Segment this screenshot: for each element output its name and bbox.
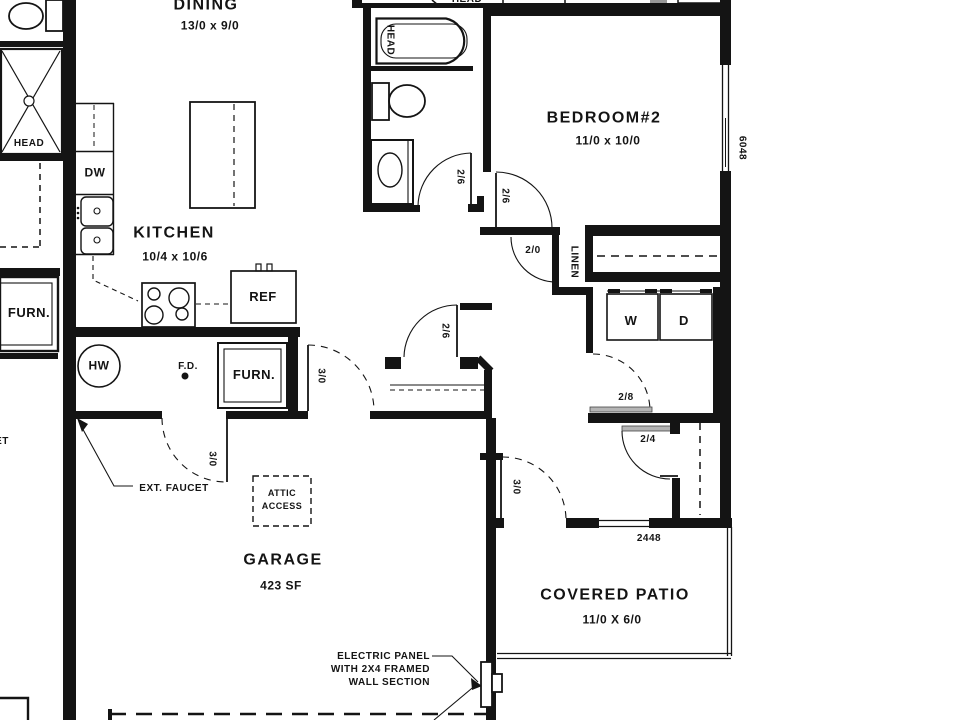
- floor-drain-icon: [182, 373, 189, 380]
- patio-dims: 11/0 X 6/0: [582, 614, 641, 627]
- closet-top-wall: [588, 225, 722, 236]
- bath-door-label: 2/6: [454, 169, 465, 184]
- dryer-label: D: [679, 314, 689, 328]
- electric-panel-icon: [481, 662, 502, 707]
- left-unit-wall: [0, 353, 58, 359]
- left-furnace-label: FURN.: [8, 306, 50, 320]
- linen-door-swing: [511, 237, 556, 282]
- garage-door-line: [108, 709, 487, 720]
- utility-right-wall: [288, 337, 298, 413]
- top-strip-box: [678, 0, 722, 3]
- house-bottom-wall: [650, 518, 732, 528]
- electric-panel-leader-arrow: [432, 656, 482, 720]
- top-strip-head-label: HEAD: [452, 0, 482, 5]
- bedroom-top-wall: [483, 8, 731, 16]
- left-unit-closet-dashed: [0, 163, 40, 247]
- garage-side-door-swing: [162, 418, 227, 482]
- left-cut-label: ET: [0, 437, 9, 448]
- floor-plan: DINING 13/0 x 9/0 KITCHEN 10/4 x 10/6 DW…: [0, 0, 960, 720]
- left-unit-toilet-icon: [9, 0, 63, 31]
- hall-closet: [385, 357, 492, 413]
- water-heater-label: HW: [89, 360, 110, 373]
- linen-door-label: 2/0: [525, 246, 540, 257]
- left-unit-wall: [0, 41, 63, 47]
- floorplan-linework: [0, 0, 960, 720]
- house-bottom-wall: [566, 518, 598, 528]
- party-wall: [63, 0, 76, 720]
- window-6048-label: 6048: [736, 136, 747, 160]
- kitchen-counter-dashed-edge: [93, 256, 138, 301]
- laundry-right-wall: [713, 287, 720, 417]
- patio-door-label: 3/0: [510, 479, 521, 494]
- bath-vanity-icon: [371, 140, 413, 204]
- house-bottom-wall: [496, 518, 504, 528]
- closet-door-header: [622, 426, 678, 431]
- electric-panel-note: ELECTRIC PANEL WITH 2X4 FRAMED WALL SECT…: [310, 650, 430, 689]
- storage-closet-left-wall: [672, 478, 680, 518]
- hall-top-wall: [480, 227, 560, 235]
- washer-dryer-icon: [607, 289, 712, 340]
- floor-drain-label: F.D.: [178, 362, 198, 373]
- washer-label: W: [625, 314, 638, 328]
- linen-left-wall: [552, 232, 559, 292]
- top-strip-wall-stub: [352, 0, 362, 8]
- furnace-label: FURN.: [233, 368, 275, 382]
- closet-door-jamb: [670, 423, 680, 434]
- bedroom-left-wall: [483, 10, 491, 172]
- bath-left-wall: [363, 7, 371, 212]
- garage-north-wall: [76, 411, 162, 419]
- kitchen-sink-icon: [77, 197, 113, 254]
- dishwasher-label: DW: [85, 167, 106, 180]
- bedroom-door-label: 2/6: [499, 188, 510, 203]
- garage-hall-door-label: 3/0: [315, 368, 326, 383]
- exterior-right-wall: [720, 0, 731, 65]
- top-strip-gray-tick: [650, 0, 667, 3]
- garage-area: 423 SF: [260, 580, 302, 593]
- laundry-door-header: [590, 407, 652, 412]
- bath-door-jamb: [477, 196, 484, 212]
- closet-bottom-wall: [588, 272, 722, 282]
- garage-side-door-label: 3/0: [206, 451, 217, 466]
- garage-north-wall: [226, 411, 308, 419]
- hall-south-wall: [588, 413, 720, 423]
- left-unit-corner: [0, 698, 28, 720]
- kitchen-dims: 10/4 x 10/6: [142, 251, 208, 264]
- stove-icon: [142, 283, 195, 327]
- house-top-wall: [362, 3, 731, 8]
- closet-left-wall: [585, 225, 593, 282]
- closet-door-label: 2/4: [640, 435, 655, 446]
- ext-faucet-leader-arrow: [77, 418, 133, 486]
- attic-access-label: ATTIC ACCESS: [256, 487, 308, 513]
- bath-south-wall: [363, 205, 420, 212]
- garage-north-wall: [370, 411, 492, 419]
- kitchen-label: KITCHEN: [133, 226, 215, 243]
- window-2448-label: 2448: [637, 534, 661, 545]
- bath-toilet-icon: [372, 83, 425, 120]
- kitchen-island: [190, 102, 255, 208]
- kitchen-south-wall: [76, 327, 300, 337]
- patio-right-edge: [728, 527, 732, 656]
- left-shower-head-label: HEAD: [14, 139, 44, 150]
- bath-divider-wall: [363, 66, 473, 71]
- left-unit-wall: [0, 155, 63, 161]
- dining-dims: 13/0 x 9/0: [181, 20, 239, 33]
- bedroom2-dims: 11/0 x 10/0: [576, 135, 641, 148]
- dining-label: DINING: [174, 0, 239, 14]
- hall-door-label: 2/6: [439, 323, 450, 338]
- garage-label: GARAGE: [243, 553, 322, 570]
- patio-bottom-edge: [497, 654, 731, 659]
- bedroom2-label: BEDROOM#2: [547, 111, 662, 128]
- hall-wall-stub: [460, 303, 492, 310]
- patio-label: COVERED PATIO: [540, 588, 690, 605]
- ext-faucet-label: EXT. FAUCET: [139, 484, 208, 495]
- left-unit-wall: [0, 268, 60, 276]
- refrigerator-label: REF: [249, 290, 277, 304]
- bedroom-window-6048: [720, 62, 731, 174]
- tub-head-label: HEAD: [384, 25, 395, 55]
- linen-label: LINEN: [568, 246, 579, 279]
- laundry-left-wall: [586, 287, 593, 353]
- rear-window-2448: [595, 518, 653, 528]
- laundry-door-label: 2/8: [618, 393, 633, 404]
